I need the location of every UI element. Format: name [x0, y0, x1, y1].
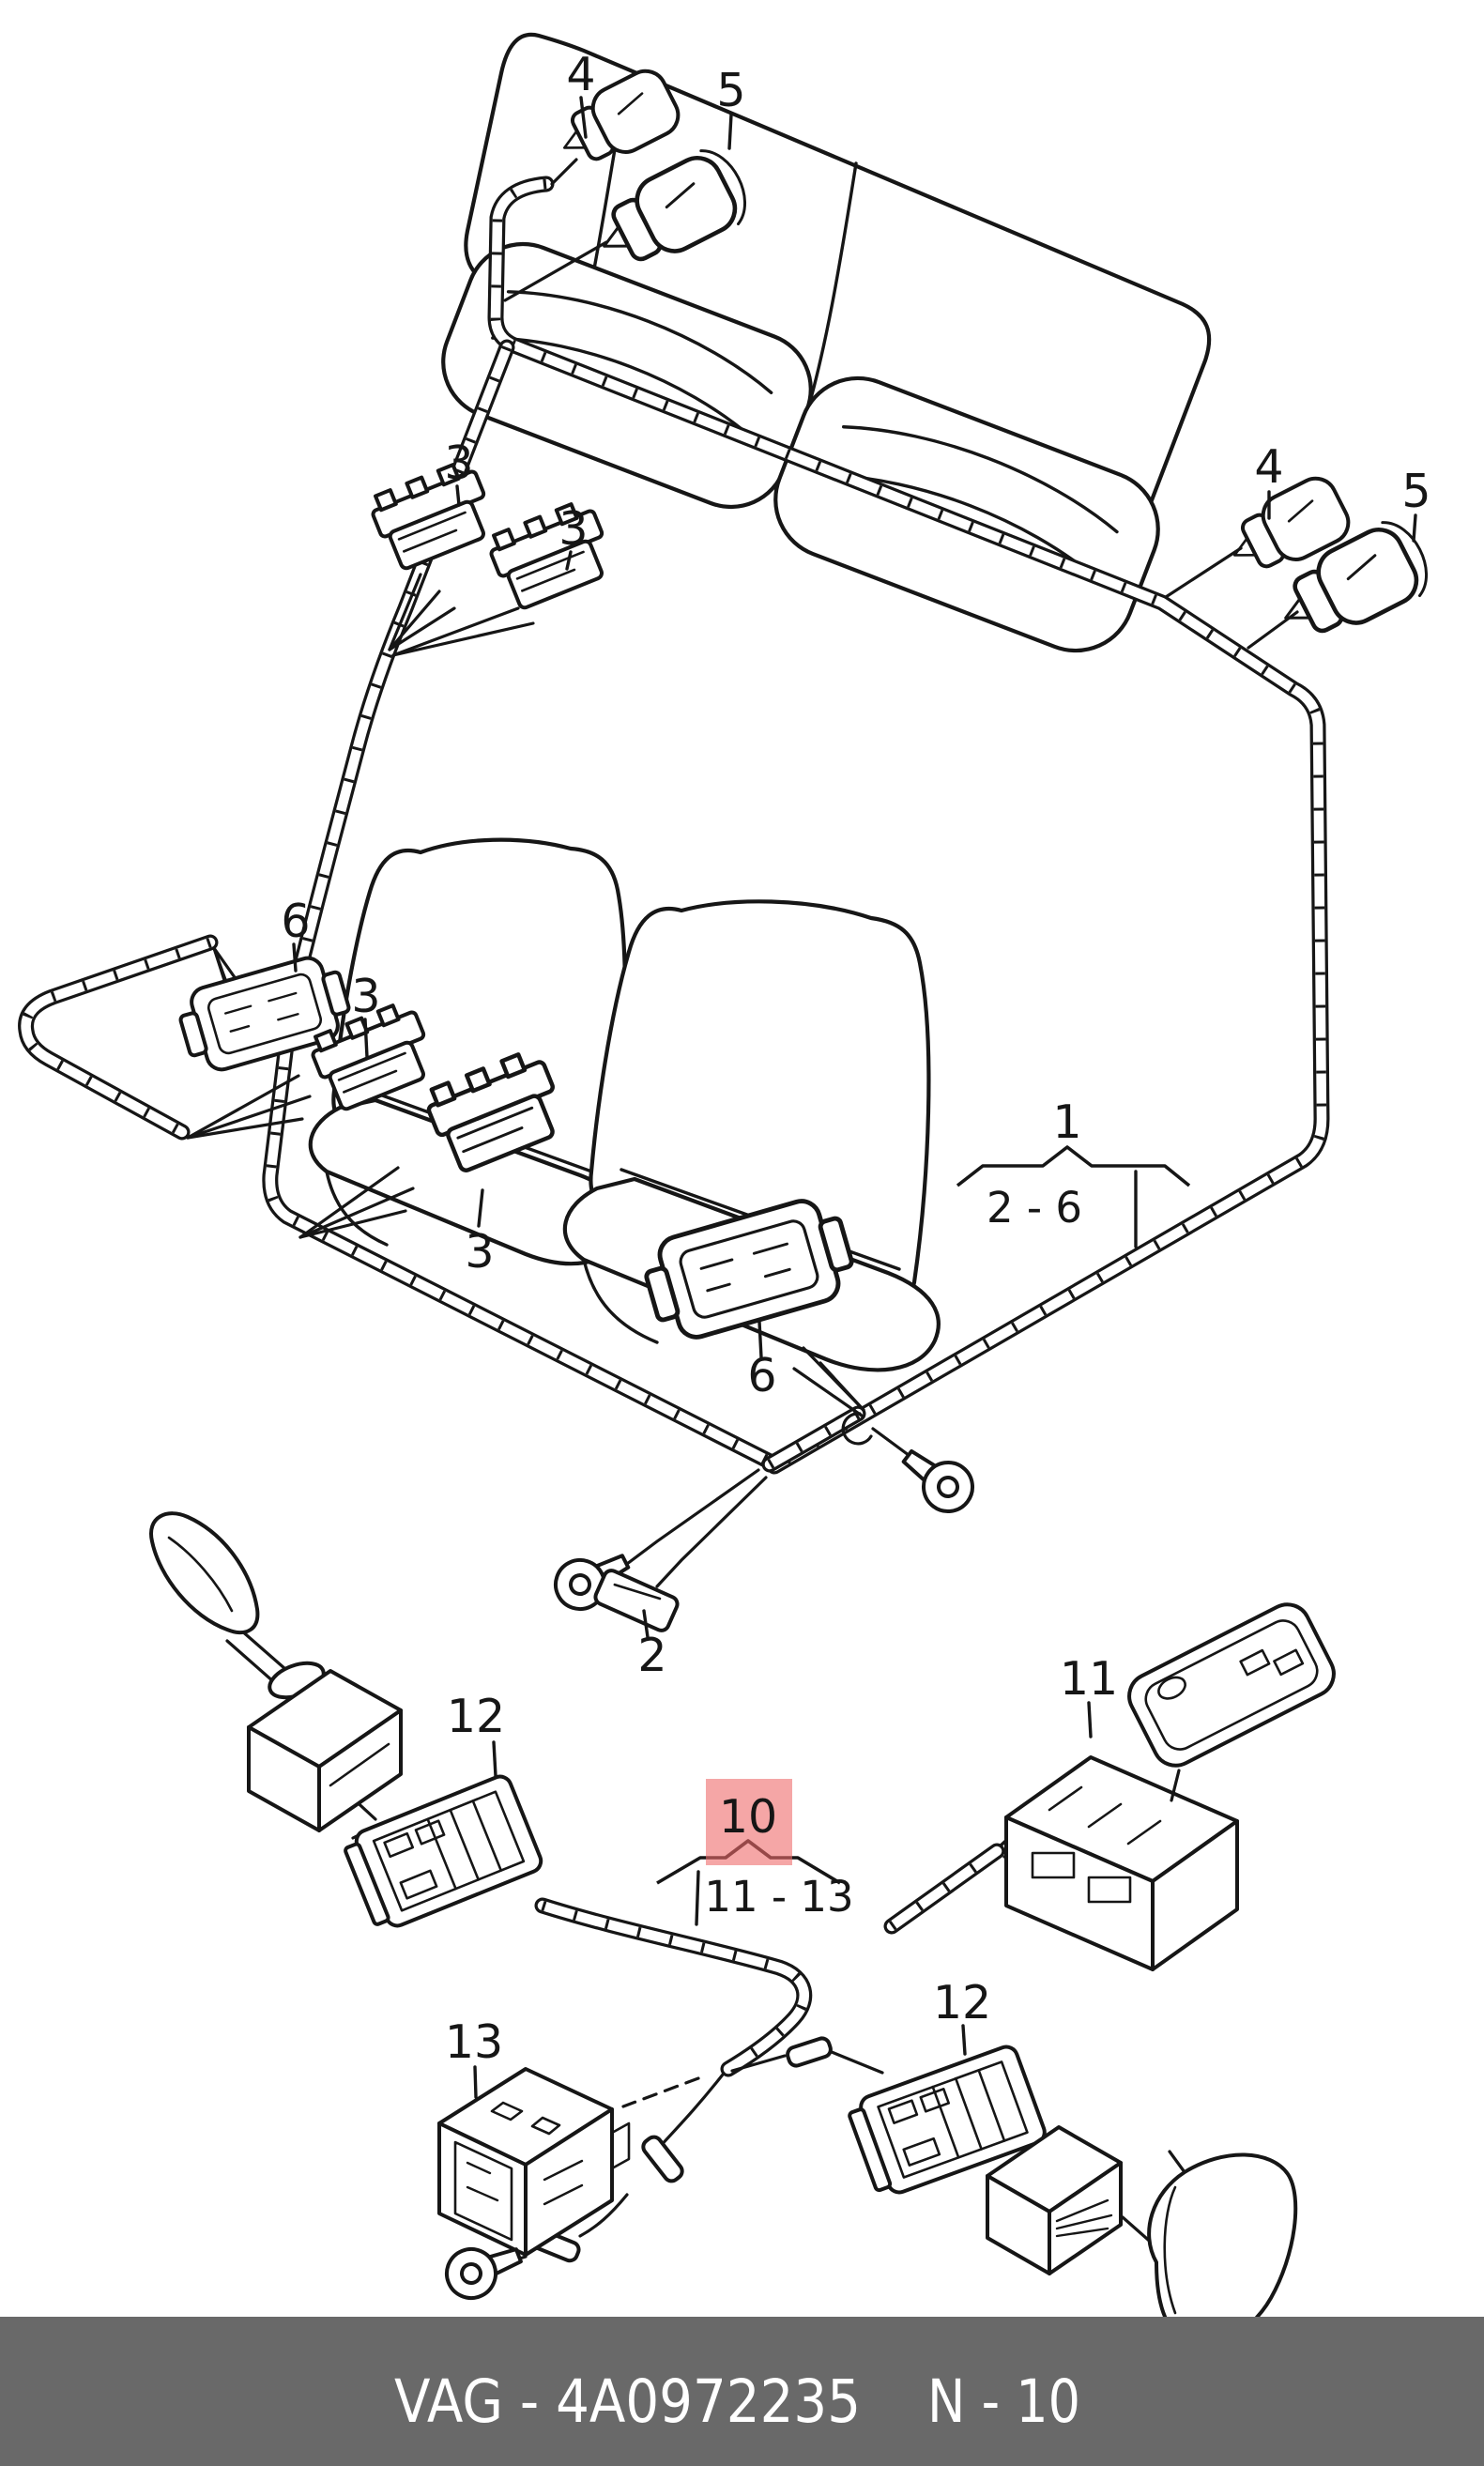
ring-terminal-right: [893, 1437, 982, 1522]
callout-2: 2: [637, 1629, 666, 1682]
callout-3-mid-d: 3: [465, 1225, 494, 1279]
parts-diagram-page: 4 5 3 3 4 5 6 3 3 6 1 2 - 6 2 12 11 10 1…: [0, 0, 1484, 2466]
wiring-harness-diagram: 4 5 3 3 4 5 6 3 3 6 1 2 - 6 2 12 11 10 1…: [0, 0, 1484, 2466]
callout-5-right: 5: [1401, 465, 1430, 518]
footer-part-number: VAG - 4A0972235: [394, 2367, 861, 2436]
callout-6-left: 6: [281, 895, 310, 948]
callout-3-rear-a: 3: [444, 437, 473, 490]
door-mirror-left: [151, 1513, 329, 1704]
callout-12-right: 12: [933, 1976, 991, 2029]
callout-11: 11: [1060, 1652, 1118, 1706]
footer-bar: VAG - 4A0972235 N - 10: [0, 2317, 1484, 2466]
switch-connector-11: [1006, 1757, 1237, 1969]
callout-3-mid-c: 3: [351, 970, 380, 1023]
connector-3a: [367, 458, 499, 573]
seat-adjustment-switch: [1122, 1597, 1341, 1773]
connector-13: [439, 2069, 629, 2255]
callout-range-2-6: 2 - 6: [987, 1183, 1082, 1233]
callout-range-11-13: 11 - 13: [704, 1872, 853, 1922]
callout-12-left: 12: [447, 1690, 505, 1743]
callout-6-seat: 6: [747, 1349, 776, 1402]
callout-3-rear-b: 3: [558, 502, 588, 556]
connector-3b: [485, 498, 618, 612]
door-mirror-right: [1149, 2152, 1295, 2345]
callout-4-top: 4: [566, 48, 595, 101]
mirror-connector-12-left: [341, 1773, 544, 1934]
callout-10-highlighted: 10: [719, 1790, 777, 1844]
callout-13: 13: [445, 2015, 503, 2069]
callout-4-right: 4: [1254, 440, 1283, 494]
footer-page-number: N - 10: [927, 2367, 1080, 2436]
callout-5-top: 5: [716, 64, 745, 117]
callout-1: 1: [1052, 1095, 1081, 1149]
